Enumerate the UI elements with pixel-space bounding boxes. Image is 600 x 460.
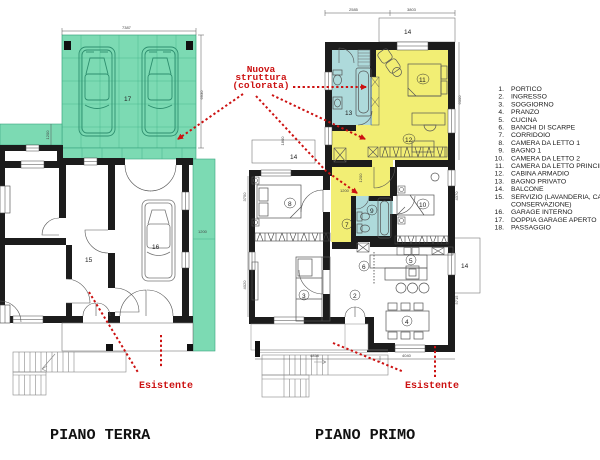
- svg-text:(colorata): (colorata): [232, 80, 289, 91]
- svg-text:1200: 1200: [198, 229, 208, 234]
- svg-text:3750: 3750: [242, 192, 247, 202]
- svg-text:6.: 6.: [498, 125, 504, 132]
- svg-text:CONSERVAZIONE): CONSERVAZIONE): [511, 202, 572, 209]
- svg-text:12: 12: [405, 137, 413, 144]
- svg-text:16: 16: [152, 244, 160, 251]
- svg-text:13.: 13.: [495, 178, 505, 185]
- svg-text:4040: 4040: [402, 353, 412, 358]
- svg-text:1.: 1.: [498, 86, 504, 93]
- svg-text:PIANO TERRA: PIANO TERRA: [50, 426, 151, 444]
- svg-text:3.: 3.: [498, 101, 504, 108]
- svg-text:CUCINA: CUCINA: [511, 117, 538, 124]
- svg-text:5715: 5715: [454, 295, 459, 305]
- svg-text:2585: 2585: [349, 7, 359, 12]
- svg-text:1200: 1200: [45, 130, 50, 140]
- svg-text:17.: 17.: [495, 217, 505, 224]
- svg-text:5.: 5.: [498, 117, 504, 124]
- svg-text:5: 5: [409, 258, 413, 265]
- svg-text:CAMERA DA LETTO PRINCIPALE: CAMERA DA LETTO PRINCIPALE: [511, 163, 600, 170]
- svg-text:18.: 18.: [495, 225, 505, 232]
- svg-text:3: 3: [302, 293, 306, 300]
- svg-text:8: 8: [288, 201, 292, 208]
- svg-text:10: 10: [419, 202, 427, 209]
- svg-text:14: 14: [404, 29, 412, 36]
- svg-text:BAGNO 1: BAGNO 1: [511, 148, 541, 155]
- svg-text:12.: 12.: [495, 171, 505, 178]
- svg-text:4370: 4370: [454, 191, 459, 201]
- svg-text:CABINA ARMADIO: CABINA ARMADIO: [511, 171, 569, 178]
- svg-text:6930: 6930: [199, 90, 204, 100]
- svg-text:13: 13: [345, 110, 353, 117]
- svg-text:PASSAGGIO: PASSAGGIO: [511, 225, 551, 232]
- svg-text:14: 14: [290, 154, 298, 161]
- svg-text:11: 11: [419, 77, 426, 84]
- svg-text:14: 14: [461, 263, 469, 270]
- svg-text:7: 7: [345, 222, 349, 229]
- svg-text:BALCONE: BALCONE: [511, 186, 544, 193]
- svg-text:6: 6: [362, 264, 366, 271]
- svg-text:7.: 7.: [498, 132, 504, 139]
- svg-text:8.: 8.: [498, 140, 504, 147]
- svg-text:Esistente: Esistente: [139, 380, 193, 392]
- svg-text:SOGGIORNO: SOGGIORNO: [511, 101, 554, 108]
- svg-text:CAMERA DA LETTO 2: CAMERA DA LETTO 2: [511, 155, 580, 162]
- svg-text:CAMERA DA LETTO 1: CAMERA DA LETTO 1: [511, 140, 580, 147]
- svg-text:Esistente: Esistente: [405, 380, 459, 392]
- svg-text:CORRIDOIO: CORRIDOIO: [511, 132, 550, 139]
- svg-text:2.: 2.: [498, 94, 504, 101]
- svg-text:SERVIZIO (LAVANDERIA, CANTINA,: SERVIZIO (LAVANDERIA, CANTINA,: [511, 194, 600, 201]
- svg-text:7387: 7387: [122, 25, 132, 30]
- svg-text:11.: 11.: [495, 163, 504, 170]
- svg-text:BAGNO PRIVATO: BAGNO PRIVATO: [511, 178, 566, 185]
- svg-text:4858: 4858: [310, 353, 320, 358]
- svg-text:9.: 9.: [498, 148, 504, 155]
- svg-text:4: 4: [405, 319, 409, 326]
- svg-text:2: 2: [353, 293, 357, 300]
- svg-text:17: 17: [124, 96, 132, 103]
- svg-text:9: 9: [370, 208, 374, 215]
- svg-text:6000: 6000: [457, 95, 462, 105]
- svg-text:1200: 1200: [340, 188, 350, 193]
- svg-text:PORTICO: PORTICO: [511, 86, 542, 93]
- svg-text:16.: 16.: [495, 209, 505, 216]
- svg-text:1200: 1200: [358, 173, 363, 183]
- svg-text:15: 15: [85, 257, 93, 264]
- svg-text:15.: 15.: [495, 194, 505, 201]
- svg-text:INGRESSO: INGRESSO: [511, 94, 547, 101]
- svg-text:DOPPIA GARAGE APERTO: DOPPIA GARAGE APERTO: [511, 217, 597, 224]
- svg-text:PIANO PRIMO: PIANO PRIMO: [315, 426, 415, 444]
- svg-text:14.: 14.: [495, 186, 505, 193]
- svg-text:1800: 1800: [280, 136, 285, 146]
- svg-text:BANCHI DI SCARPE: BANCHI DI SCARPE: [511, 125, 576, 132]
- svg-text:4020: 4020: [242, 280, 247, 290]
- svg-text:PRANZO: PRANZO: [511, 109, 539, 116]
- svg-text:4.: 4.: [498, 109, 504, 116]
- svg-text:10.: 10.: [495, 155, 505, 162]
- svg-text:3803: 3803: [407, 7, 417, 12]
- svg-text:GARAGE INTERNO: GARAGE INTERNO: [511, 209, 573, 216]
